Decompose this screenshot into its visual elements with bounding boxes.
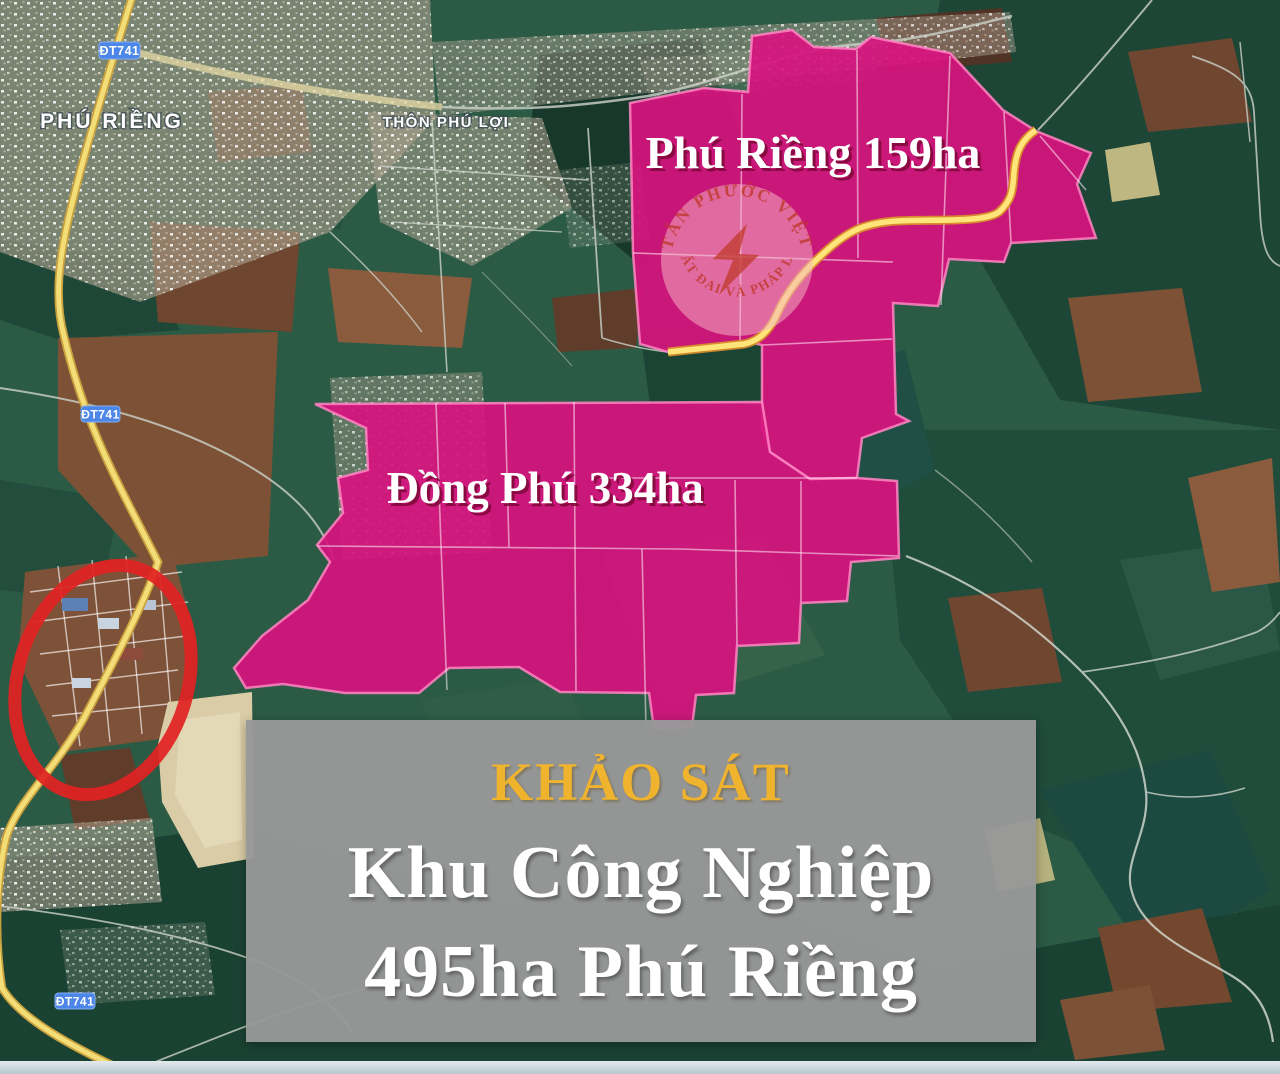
road-badge-label: ĐT741	[81, 408, 120, 422]
road-badge-label: ĐT741	[56, 995, 95, 1009]
area-label-phu-rieng: Phú Riềng 159ha	[646, 127, 981, 178]
road-badge-middle: ĐT741	[81, 406, 120, 422]
area-label-dong-phu: Đồng Phú 334ha	[386, 463, 704, 513]
village-label: THÔN PHÚ LỢI	[383, 113, 510, 131]
road-badge-bottom: ĐT741	[55, 993, 95, 1009]
road-badge-top: ĐT741	[99, 42, 140, 59]
survey-banner: KHẢO SÁT Khu Công Nghiệp 495ha Phú Riềng	[246, 720, 1036, 1042]
screenshot-bottom-edge	[0, 1061, 1280, 1074]
map-screenshot: TÂN PHƯỚC VIỆT ĐẤT ĐAI VÀ PHÁP LÝ ĐT741 …	[0, 0, 1280, 1074]
banner-title: KHẢO SÁT	[491, 740, 791, 824]
town-label: PHÚ RIỀNG	[40, 109, 184, 133]
banner-line-1: Khu Công Nghiệp	[348, 824, 935, 923]
banner-line-2: 495ha Phú Riềng	[364, 923, 918, 1022]
road-badge-label: ĐT741	[99, 44, 139, 58]
